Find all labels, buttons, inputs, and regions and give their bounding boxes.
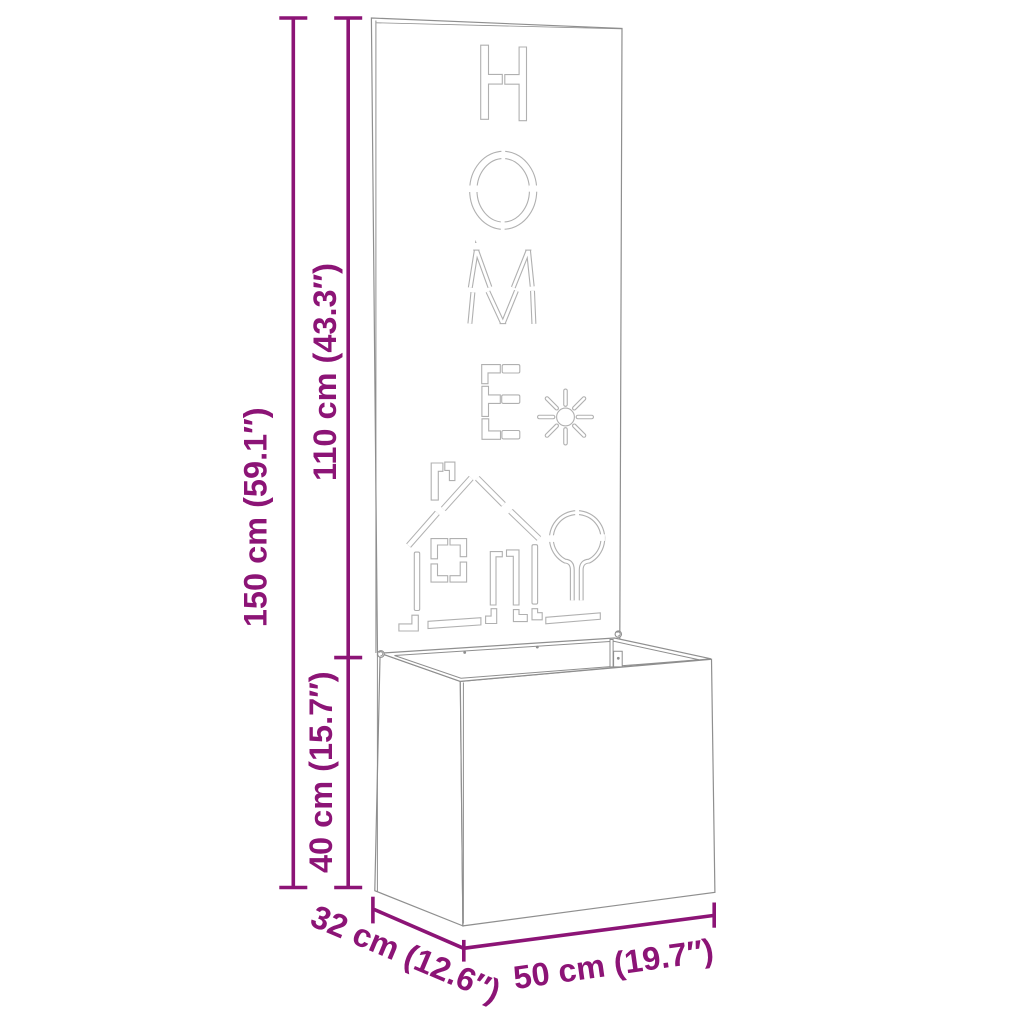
svg-text:50 cm (19.7″): 50 cm (19.7″) [511,932,716,996]
svg-text:150 cm (59.1″): 150 cm (59.1″) [238,407,274,627]
svg-text:110 cm (43.3″): 110 cm (43.3″) [307,263,343,481]
svg-text:40 cm (15.7″): 40 cm (15.7″) [303,671,339,873]
